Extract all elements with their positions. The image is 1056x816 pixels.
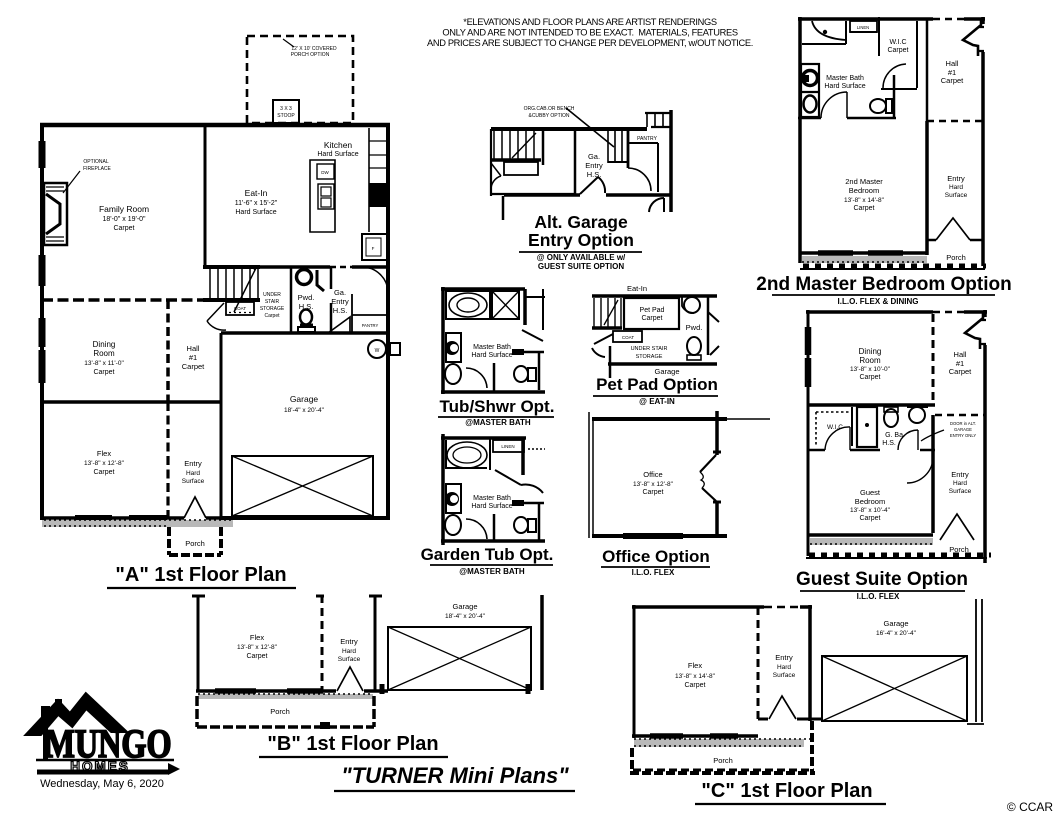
svg-text:Hard: Hard — [949, 184, 963, 191]
svg-text:@MASTER BATH: @MASTER BATH — [459, 567, 525, 576]
svg-text:Room: Room — [93, 349, 115, 358]
svg-text:*ELEVATIONS AND FLOOR PLANS AR: *ELEVATIONS AND FLOOR PLANS ARE ARTIST R… — [463, 17, 717, 27]
svg-text:Kitchen: Kitchen — [324, 140, 353, 150]
svg-text:Wednesday, May 6, 2020: Wednesday, May 6, 2020 — [40, 778, 164, 790]
svg-text:Entry: Entry — [951, 470, 969, 479]
svg-text:Pet Pad: Pet Pad — [640, 307, 665, 314]
svg-text:PANTRY: PANTRY — [637, 136, 657, 142]
svg-text:Hard: Hard — [186, 470, 200, 477]
svg-text:UNDER: UNDER — [263, 292, 281, 298]
svg-text:16'-4" x 20'-4": 16'-4" x 20'-4" — [876, 630, 917, 637]
svg-text:Carpet: Carpet — [853, 205, 874, 212]
svg-text:OPTIONAL: OPTIONAL — [83, 159, 109, 165]
svg-text:Entry: Entry — [775, 653, 793, 662]
svg-text:Carpet: Carpet — [246, 653, 267, 660]
svg-text:Entry: Entry — [947, 174, 965, 183]
svg-text:13'-8" x 10'-0": 13'-8" x 10'-0" — [850, 366, 891, 373]
svg-text:DW: DW — [321, 170, 329, 175]
svg-text:I.L.O. FLEX & DINING: I.L.O. FLEX & DINING — [838, 297, 919, 306]
svg-text:Family Room: Family Room — [99, 204, 149, 214]
svg-text:PANTRY: PANTRY — [362, 323, 379, 328]
svg-text:Master Bath: Master Bath — [826, 75, 864, 82]
svg-text:Pet Pad Option: Pet Pad Option — [596, 375, 718, 394]
svg-text:Hard: Hard — [342, 648, 356, 655]
svg-text:@ EAT-IN: @ EAT-IN — [639, 397, 675, 406]
svg-text:Office Option: Office Option — [602, 547, 710, 566]
svg-text:Carpet: Carpet — [113, 225, 134, 232]
svg-text:Garage: Garage — [290, 394, 319, 404]
svg-text:Master Bath: Master Bath — [473, 495, 511, 502]
svg-text:UNDER STAIR: UNDER STAIR — [631, 346, 668, 352]
svg-text:Porch: Porch — [713, 756, 733, 765]
svg-text:Surface: Surface — [773, 672, 796, 679]
svg-text:STORAGE: STORAGE — [636, 354, 663, 360]
svg-text:18'-4" x 20'-4": 18'-4" x 20'-4" — [445, 613, 486, 620]
svg-text:Ga.: Ga. — [588, 152, 600, 161]
svg-text:Porch: Porch — [270, 707, 290, 716]
svg-text:Carpet: Carpet — [941, 76, 964, 85]
svg-text:H.S.: H.S. — [333, 306, 348, 315]
svg-text:COAT: COAT — [234, 306, 246, 311]
svg-text:Pwd.: Pwd. — [298, 293, 315, 302]
svg-text:Office: Office — [643, 470, 662, 479]
svg-text:13'-8" x 12'-8": 13'-8" x 12'-8" — [633, 481, 674, 488]
svg-text:2nd Master: 2nd Master — [845, 177, 883, 186]
svg-text:LINEN: LINEN — [501, 444, 514, 449]
svg-text:Carpet: Carpet — [641, 315, 662, 322]
svg-text:Carpet: Carpet — [887, 47, 908, 54]
svg-text:GARAGE: GARAGE — [954, 427, 972, 432]
svg-text:Garden Tub Opt.: Garden Tub Opt. — [421, 545, 554, 564]
svg-text:DOOR in ALT.: DOOR in ALT. — [950, 421, 976, 426]
svg-text:ONLY AND ARE NOT INTENDED TO B: ONLY AND ARE NOT INTENDED TO BE EXACT. M… — [442, 28, 737, 38]
svg-text:Bedroom: Bedroom — [849, 186, 879, 195]
svg-text:Flex: Flex — [250, 633, 264, 642]
svg-text:Entry: Entry — [340, 637, 358, 646]
svg-text:Hard Surface: Hard Surface — [235, 209, 276, 216]
svg-text:&CUBBY OPTION: &CUBBY OPTION — [528, 113, 569, 119]
svg-text:Ga.: Ga. — [334, 288, 346, 297]
svg-text:ENTRY ONLY: ENTRY ONLY — [950, 433, 977, 438]
svg-text:Carpet: Carpet — [949, 367, 972, 376]
svg-text:Tub/Shwr Opt.: Tub/Shwr Opt. — [440, 397, 555, 416]
svg-text:Guest: Guest — [860, 488, 881, 497]
svg-text:LINEN: LINEN — [857, 25, 869, 30]
svg-text:Entry: Entry — [331, 297, 349, 306]
svg-text:W: W — [375, 348, 380, 354]
svg-text:"TURNER Mini Plans": "TURNER Mini Plans" — [341, 763, 569, 788]
svg-text:GUEST SUITE OPTION: GUEST SUITE OPTION — [538, 262, 624, 271]
svg-text:Bedroom: Bedroom — [855, 497, 885, 506]
svg-text:Flex: Flex — [97, 449, 111, 458]
svg-text:FIREPLACE: FIREPLACE — [83, 166, 111, 172]
svg-text:Surface: Surface — [338, 656, 361, 663]
svg-text:PORCH OPTION: PORCH OPTION — [291, 52, 330, 58]
svg-text:Flex: Flex — [688, 661, 702, 670]
svg-text:H.S.: H.S. — [882, 440, 896, 447]
svg-text:Eat-In: Eat-In — [245, 188, 268, 198]
svg-text:13'-8" x 12'-8": 13'-8" x 12'-8" — [237, 644, 278, 651]
svg-text:Dining: Dining — [93, 340, 116, 349]
svg-text:Carpet: Carpet — [264, 313, 280, 319]
svg-text:Garage: Garage — [452, 602, 477, 611]
svg-text:Carpet: Carpet — [642, 489, 663, 496]
svg-text:"A" 1st Floor Plan: "A" 1st Floor Plan — [115, 564, 286, 586]
svg-text:Surface: Surface — [945, 192, 968, 199]
svg-text:Porch: Porch — [185, 539, 205, 548]
svg-text:Carpet: Carpet — [93, 369, 114, 376]
svg-text:Hard: Hard — [953, 480, 967, 487]
svg-text:13'-8" x 14'-8": 13'-8" x 14'-8" — [675, 673, 716, 680]
svg-text:Entry: Entry — [585, 161, 603, 170]
svg-text:11'-6" x 15'-2": 11'-6" x 15'-2" — [235, 200, 278, 207]
svg-text:2nd Master Bedroom Option: 2nd Master Bedroom Option — [756, 274, 1011, 295]
svg-text:STAIR: STAIR — [265, 299, 280, 305]
svg-text:Eat-In: Eat-In — [627, 284, 647, 293]
svg-text:Carpet: Carpet — [182, 362, 205, 371]
svg-text:W.I.C: W.I.C — [889, 39, 906, 46]
svg-text:W.I.C: W.I.C — [827, 424, 843, 431]
svg-text:Entry Option: Entry Option — [528, 230, 634, 250]
svg-text:"C" 1st Floor Plan: "C" 1st Floor Plan — [701, 780, 872, 802]
svg-text:13'-8" x 14'-8": 13'-8" x 14'-8" — [844, 197, 885, 204]
svg-text:18'-4" x 20'-4": 18'-4" x 20'-4" — [284, 407, 325, 414]
svg-text:STORAGE: STORAGE — [260, 306, 285, 312]
svg-text:Dining: Dining — [859, 347, 882, 356]
svg-text:Carpet: Carpet — [859, 515, 880, 522]
svg-text:"B" 1st Floor Plan: "B" 1st Floor Plan — [267, 733, 438, 755]
svg-text:Hard: Hard — [777, 664, 791, 671]
svg-text:Garage: Garage — [883, 619, 908, 628]
svg-text:Surface: Surface — [182, 478, 205, 485]
svg-text:Alt. Garage: Alt. Garage — [534, 212, 628, 232]
svg-text:Hall: Hall — [946, 59, 959, 68]
svg-text:AND PRICES ARE SUBJECT TO CHAN: AND PRICES ARE SUBJECT TO CHANGE PER DEV… — [427, 38, 753, 48]
svg-text:Carpet: Carpet — [93, 469, 114, 476]
svg-text:Carpet: Carpet — [684, 682, 705, 689]
svg-text:Carpet: Carpet — [859, 374, 880, 381]
svg-text:13'-8" x 12'-8": 13'-8" x 12'-8" — [84, 460, 125, 467]
svg-text:Entry: Entry — [184, 459, 202, 468]
svg-text:18'-0" x 19'-0": 18'-0" x 19'-0" — [102, 216, 146, 223]
svg-text:Hard Surface: Hard Surface — [317, 151, 358, 158]
svg-text:COAT: COAT — [622, 335, 634, 340]
svg-text:13'-8" x 11'-0": 13'-8" x 11'-0" — [84, 360, 124, 367]
svg-text:@MASTER BATH: @MASTER BATH — [465, 418, 531, 427]
svg-text:F: F — [372, 246, 375, 251]
svg-text:Room: Room — [859, 356, 881, 365]
svg-text:Hall: Hall — [954, 350, 967, 359]
svg-text:Master Bath: Master Bath — [473, 344, 511, 351]
svg-text:Guest Suite Option: Guest Suite Option — [796, 569, 968, 590]
svg-text:Hard Surface: Hard Surface — [471, 352, 512, 359]
svg-text:13'-8" x 10'-4": 13'-8" x 10'-4" — [850, 507, 891, 514]
svg-text:Hard Surface: Hard Surface — [824, 83, 865, 90]
svg-text:I.L.O. FLEX: I.L.O. FLEX — [632, 568, 675, 577]
svg-text:@ ONLY AVAILABLE w/: @ ONLY AVAILABLE w/ — [537, 253, 626, 262]
svg-text:I.L.O. FLEX: I.L.O. FLEX — [857, 592, 900, 601]
svg-text:Hard Surface: Hard Surface — [471, 503, 512, 510]
svg-text:3 X 3: 3 X 3 — [280, 106, 292, 112]
svg-text:STOOP: STOOP — [277, 113, 295, 119]
svg-text:Pwd.: Pwd. — [686, 323, 703, 332]
svg-text:© CCAR: © CCAR — [1007, 800, 1054, 814]
svg-text:Porch: Porch — [946, 253, 966, 262]
svg-text:Surface: Surface — [949, 488, 972, 495]
svg-text:#1: #1 — [189, 353, 197, 362]
svg-text:Hall: Hall — [187, 344, 200, 353]
